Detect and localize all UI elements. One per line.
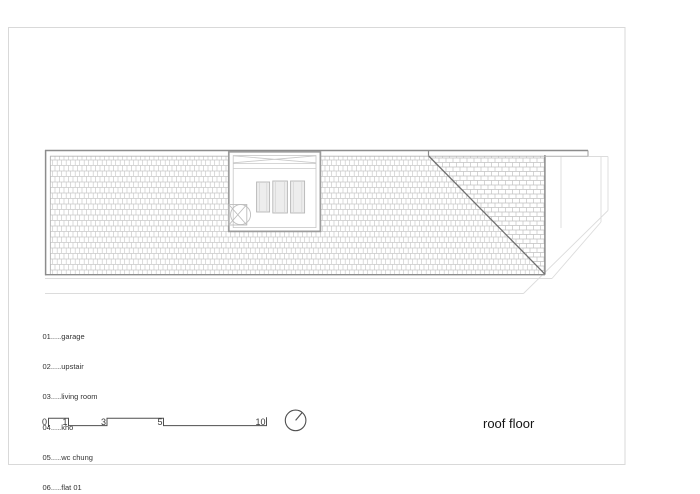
terrace-opening xyxy=(229,152,321,232)
scale-label: 10 xyxy=(255,418,265,427)
north-arrow-icon xyxy=(285,410,306,431)
legend-item: 03.....living room xyxy=(43,392,98,402)
skylight-panels xyxy=(257,181,305,213)
legend-item: 02.....upstair xyxy=(43,362,98,372)
scale-label: 3 xyxy=(101,418,106,427)
legend-item: 05.....wc chung xyxy=(43,453,98,463)
drawing-title: roof floor xyxy=(483,416,534,431)
legend-item: 04.....kho xyxy=(43,423,98,433)
legend-item: 01.....garage xyxy=(43,332,98,342)
architectural-sheet: 01.....garage 02.....upstair 03.....livi… xyxy=(0,0,700,494)
legend-item: 06.....flat 01 xyxy=(43,483,98,493)
scale-label: 5 xyxy=(157,418,162,427)
scale-label: 1 xyxy=(62,418,67,427)
scale-label: 0 xyxy=(42,418,47,427)
legend: 01.....garage 02.....upstair 03.....livi… xyxy=(43,312,98,494)
